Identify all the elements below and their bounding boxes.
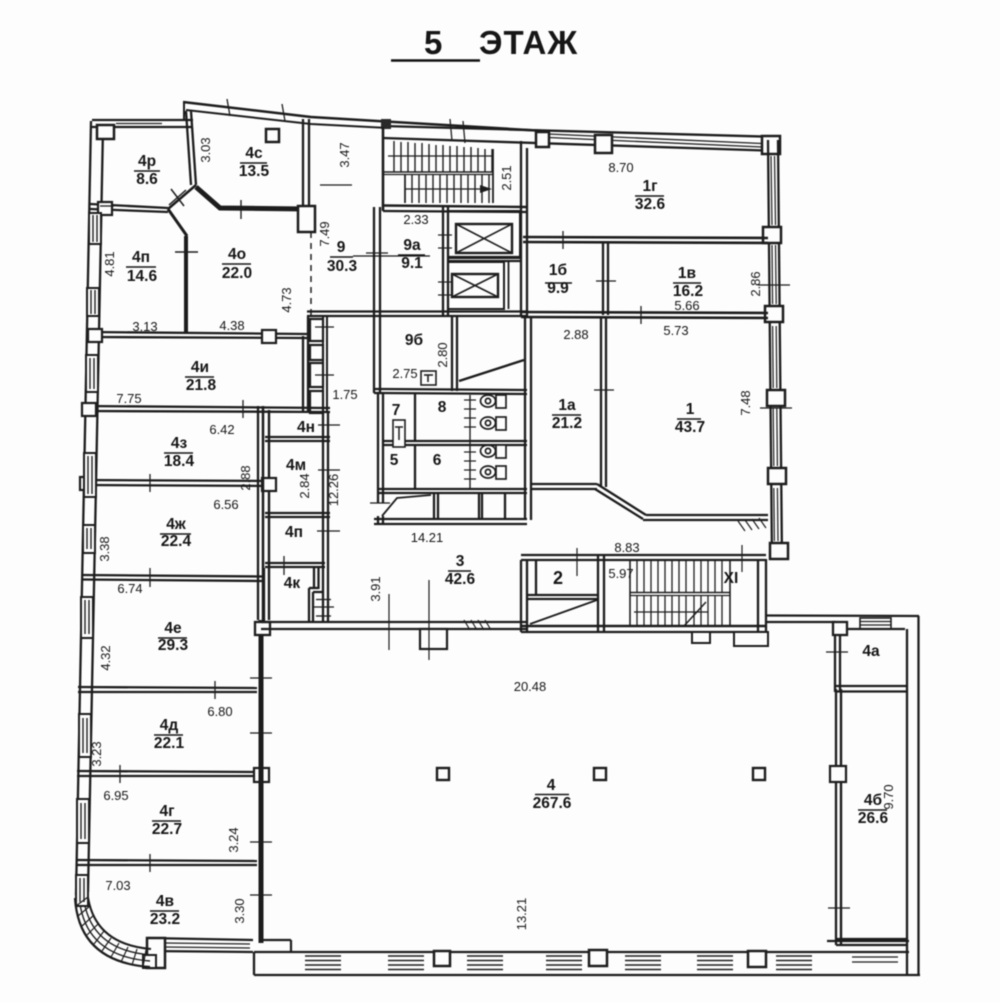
svg-text:2.51: 2.51	[499, 165, 514, 190]
svg-text:8: 8	[438, 399, 447, 416]
svg-text:4с: 4с	[245, 145, 263, 162]
svg-text:4д: 4д	[160, 717, 179, 734]
svg-text:2.88: 2.88	[563, 327, 588, 342]
svg-text:4п: 4п	[285, 524, 303, 541]
svg-text:7.03: 7.03	[105, 878, 130, 893]
svg-text:21.8: 21.8	[186, 377, 217, 394]
svg-text:2.88: 2.88	[238, 465, 253, 490]
svg-text:6.56: 6.56	[213, 497, 238, 512]
svg-text:29.3: 29.3	[158, 637, 189, 654]
svg-text:2.80: 2.80	[435, 342, 450, 367]
svg-text:2.33: 2.33	[403, 212, 428, 227]
svg-text:4.32: 4.32	[98, 645, 113, 670]
svg-text:6.74: 6.74	[117, 581, 142, 596]
svg-text:4п: 4п	[132, 249, 150, 266]
svg-text:4а: 4а	[862, 643, 880, 660]
svg-text:ЭТАЖ: ЭТАЖ	[479, 24, 578, 61]
svg-text:32.6: 32.6	[635, 196, 666, 213]
svg-text:5: 5	[390, 452, 399, 469]
svg-text:4ж: 4ж	[166, 516, 187, 533]
svg-text:6.42: 6.42	[209, 422, 234, 437]
svg-text:4о: 4о	[228, 246, 246, 263]
svg-text:5.97: 5.97	[608, 566, 633, 581]
svg-text:13.21: 13.21	[514, 898, 529, 931]
svg-text:2.86: 2.86	[748, 271, 763, 296]
svg-text:23.2: 23.2	[150, 911, 180, 928]
svg-text:3.13: 3.13	[132, 319, 157, 334]
svg-text:9: 9	[337, 239, 346, 256]
svg-text:8.6: 8.6	[136, 171, 158, 188]
svg-text:21.2: 21.2	[552, 415, 582, 432]
svg-text:3.30: 3.30	[232, 898, 247, 923]
svg-text:13.5: 13.5	[239, 163, 270, 180]
svg-text:7: 7	[392, 402, 401, 419]
svg-text:4и: 4и	[191, 359, 209, 376]
svg-text:3.47: 3.47	[337, 142, 352, 167]
svg-text:3.24: 3.24	[226, 827, 241, 852]
svg-text:22.4: 22.4	[161, 533, 192, 550]
svg-text:6.95: 6.95	[103, 788, 128, 803]
svg-text:4г: 4г	[159, 803, 175, 820]
svg-text:26.6: 26.6	[858, 810, 889, 827]
svg-text:14.21: 14.21	[411, 530, 444, 545]
svg-text:4р: 4р	[138, 153, 156, 170]
svg-text:9.1: 9.1	[401, 255, 423, 272]
svg-text:7.48: 7.48	[738, 390, 753, 415]
svg-text:18.4: 18.4	[164, 453, 195, 470]
svg-text:6.80: 6.80	[207, 704, 232, 719]
svg-text:9б: 9б	[405, 332, 423, 349]
svg-text:4к: 4к	[284, 575, 301, 592]
svg-text:4м: 4м	[286, 457, 306, 474]
svg-text:6: 6	[433, 452, 442, 469]
svg-text:43.7: 43.7	[675, 419, 705, 436]
svg-text:3.23: 3.23	[89, 741, 104, 766]
svg-text:4н: 4н	[297, 419, 315, 436]
svg-text:4.73: 4.73	[279, 287, 294, 312]
svg-text:4в: 4в	[156, 893, 174, 910]
svg-text:3.03: 3.03	[198, 137, 213, 162]
svg-text:7.75: 7.75	[116, 391, 141, 406]
svg-text:14.6: 14.6	[127, 268, 158, 285]
svg-text:4.81: 4.81	[102, 251, 117, 276]
svg-text:42.6: 42.6	[445, 571, 476, 588]
svg-text:1: 1	[686, 401, 695, 418]
svg-text:1г: 1г	[642, 178, 658, 195]
svg-text:5: 5	[424, 24, 443, 61]
svg-text:4.38: 4.38	[219, 318, 244, 333]
svg-text:2: 2	[553, 568, 563, 588]
svg-text:3: 3	[456, 553, 465, 570]
svg-text:22.1: 22.1	[154, 735, 185, 752]
svg-text:30.3: 30.3	[327, 258, 358, 275]
svg-text:267.6: 267.6	[533, 795, 572, 812]
svg-text:9.70: 9.70	[881, 784, 896, 809]
svg-text:2.75: 2.75	[392, 366, 417, 381]
svg-text:3.91: 3.91	[368, 576, 383, 601]
svg-text:XI: XI	[724, 570, 739, 587]
svg-text:1б: 1б	[549, 262, 567, 279]
svg-text:8.70: 8.70	[608, 160, 633, 175]
svg-text:4: 4	[547, 777, 556, 794]
svg-text:7.49: 7.49	[317, 221, 332, 246]
svg-text:22.7: 22.7	[152, 821, 182, 838]
svg-text:12.26: 12.26	[326, 474, 341, 507]
svg-text:1.75: 1.75	[332, 387, 357, 402]
svg-text:5.73: 5.73	[663, 323, 688, 338]
svg-text:22.0: 22.0	[222, 265, 252, 282]
svg-text:2.84: 2.84	[297, 473, 312, 498]
svg-text:4б: 4б	[864, 792, 882, 809]
svg-text:4з: 4з	[171, 435, 188, 452]
svg-text:8.83: 8.83	[614, 540, 639, 555]
svg-text:5.66: 5.66	[674, 298, 699, 313]
svg-text:1в: 1в	[678, 265, 696, 282]
svg-text:9а: 9а	[403, 237, 421, 254]
svg-text:1а: 1а	[558, 397, 576, 414]
svg-text:4е: 4е	[164, 620, 182, 637]
svg-text:3.38: 3.38	[97, 536, 112, 561]
svg-text:20.48: 20.48	[514, 679, 547, 694]
